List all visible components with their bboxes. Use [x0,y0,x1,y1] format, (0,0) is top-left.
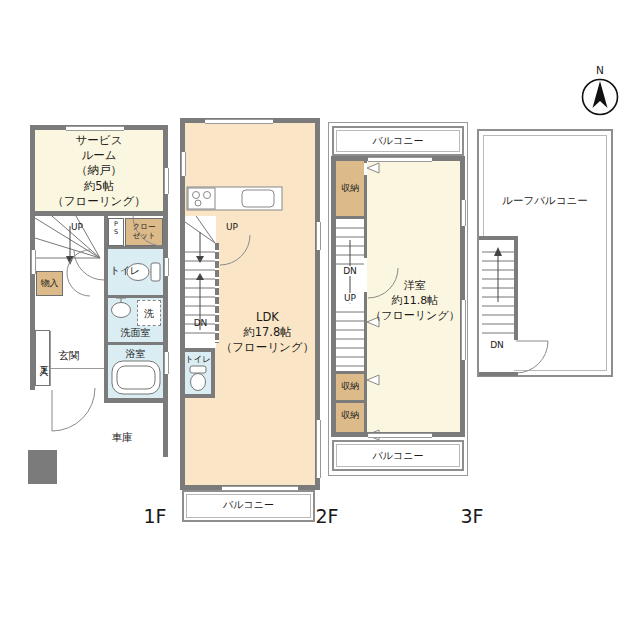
wall-3f-col-b [336,371,367,374]
balcony-3f-top-label: バルコニー [332,134,464,148]
wall-service-bottom [30,211,168,216]
window-service-top [66,126,124,131]
opening-3f-divider-b [364,258,367,292]
entrance-step-line-h [50,368,104,369]
floor1-label: 1F [132,505,178,527]
garage-label: 車庫 [98,431,146,445]
window-3f-balcony-top-door [368,157,432,162]
wall-2f-toilet-bottom [185,394,215,398]
wall-roof-stair-top [479,236,518,240]
up-label-2f: UP [217,222,247,232]
up-label-1f: UP [62,222,92,232]
compass-north-label: N [576,64,624,76]
wall-3f-col-c [336,400,367,403]
compass-icon [580,77,620,117]
storage-3f-top-label: 収納 [336,182,364,195]
window-2f-left [181,152,186,176]
window-2f-balcony-door [222,486,298,491]
wall-1f-partition [104,216,108,402]
roof-balcony-label: ルーフバルコニー [477,194,613,208]
floor2-label: 2F [304,505,350,527]
wall-3f-divider [364,161,367,432]
storage-3f-mid-label: 収納 [336,380,364,393]
floor3-label: 3F [449,505,495,527]
closet-label: クロー ゼット [125,222,163,240]
down-label-2f: DN [187,318,214,328]
down-label-3f: DN [336,266,364,276]
washroom-label: 洗面室 [108,326,163,340]
toilet-label-1f: トイレ [106,264,144,278]
roof-stairwell [481,240,514,372]
western-room-label: 洋室 約11.8帖 （フローリング） [368,278,462,323]
ldk-label: LDK 約17.8帖 （フローリング） [220,310,315,355]
window-1f-left [31,250,36,274]
entrance-label: 玄関 [50,349,88,363]
stairwell-2f [185,216,216,348]
wall-1f-div-c [108,342,163,345]
wall-1f-div-b [108,295,163,298]
shoe-storage-label: 下足入 [36,334,50,384]
compass: N [576,64,624,126]
wall-1f-div-a [108,246,163,249]
window-3f-balcony-bottom-door [368,433,432,438]
bathroom-label: 浴室 [108,347,163,361]
balcony-3f-bottom-label: バルコニー [332,449,464,463]
stair-rail-2f [215,243,219,343]
window-service-right [164,168,169,194]
up-label-3f: UP [336,293,364,303]
balcony-2f-label: バルコニー [182,498,315,512]
window-2f-top [205,119,273,124]
storage-3f-bottom-label: 収納 [336,409,364,422]
toilet-label-2f: トイレ [184,354,212,366]
service-room-label: サービス ルーム （納戸） 約5帖 （フローリング） [35,133,163,209]
window-bath [164,352,169,374]
opening-3f-divider-a [364,163,367,175]
garage-pillar [28,450,57,484]
window-2f-right-upper [316,222,321,250]
wall-bath-bottom [104,398,168,403]
floorplan-canvas: N サービス ルーム （納戸） 約5帖 （フローリング） UP 物入 P S ク… [0,0,640,640]
down-label-roof: DN [482,340,512,350]
storage-monoire-label: 物入 [36,277,63,290]
window-toilet-1f [164,258,169,276]
wall-3f-col-a [336,216,367,219]
ps-label: P S [108,221,124,236]
window-2f-right-lower [316,420,321,478]
wall-roof-stair-bottom [479,372,518,376]
wall-roof-stair-right [514,236,518,340]
window-3f-right-upper [461,200,466,226]
washer-label: 洗 [137,307,161,321]
